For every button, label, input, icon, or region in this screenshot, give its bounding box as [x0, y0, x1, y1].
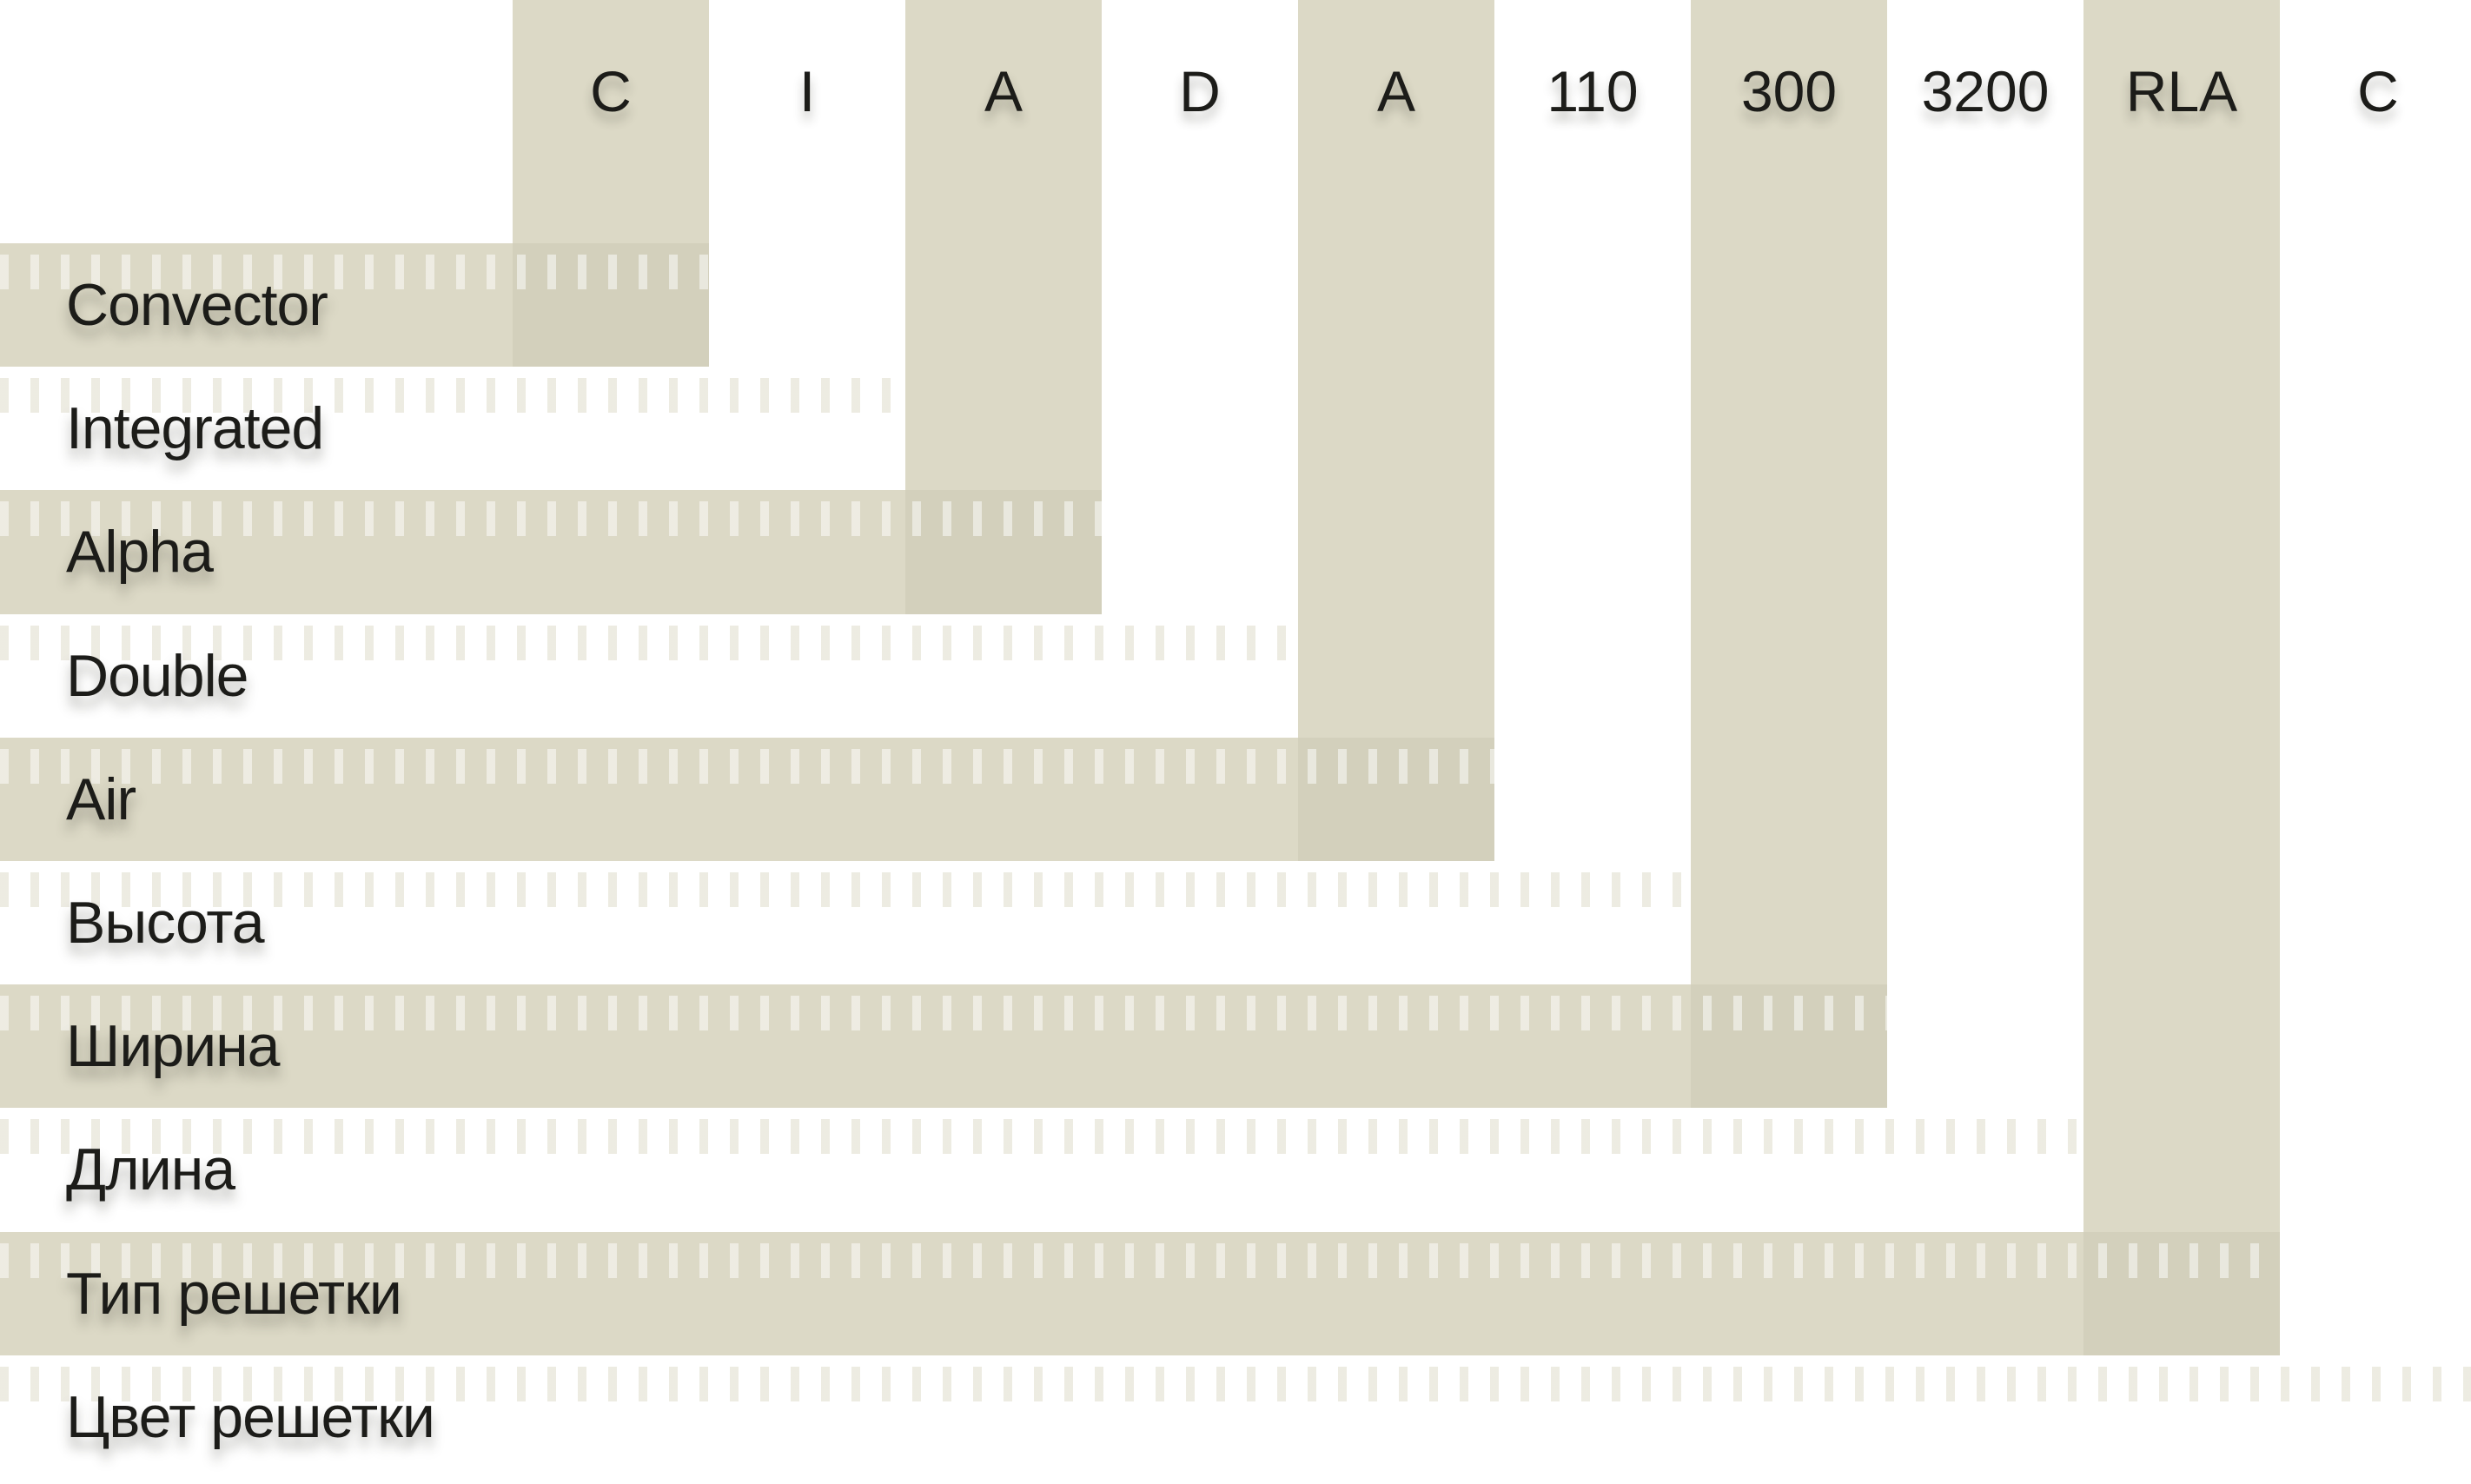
dotted-texture-line	[0, 996, 1887, 1030]
band-intersection-convector	[513, 243, 709, 367]
code-convector: C	[513, 0, 709, 182]
row-label-integrated: Integrated	[66, 399, 323, 458]
row-label-grille-color: Цвет решетки	[66, 1388, 434, 1447]
band-intersection-alpha	[905, 490, 1102, 613]
row-label-air: Air	[66, 770, 136, 829]
band-intersection-grille-type	[2083, 1232, 2280, 1355]
row-height: Высота	[0, 861, 1691, 984]
row-label-double: Double	[66, 646, 248, 706]
code-width: 300	[1691, 0, 1887, 182]
row-double: Double	[0, 614, 1298, 738]
row-width: Ширина	[0, 984, 1887, 1108]
row-label-convector: Convector	[66, 275, 328, 335]
row-integrated: Integrated	[0, 367, 905, 490]
row-grille-type: Тип решетки	[0, 1232, 2280, 1355]
code-length: 3200	[1887, 0, 2083, 182]
band-intersection-width	[1691, 984, 1887, 1108]
band-intersection-air	[1298, 738, 1494, 861]
code-integrated: I	[709, 0, 905, 182]
row-air: Air	[0, 738, 1494, 861]
row-length: Длина	[0, 1108, 2083, 1231]
code-grille-type: RLA	[2083, 0, 2280, 182]
row-label-alpha: Alpha	[66, 522, 213, 581]
row-label-length: Длина	[66, 1140, 235, 1199]
column-band-grille-type	[2083, 0, 2280, 1355]
row-grille-color: Цвет решетки	[0, 1355, 2471, 1479]
code-grille-color: C	[2280, 0, 2471, 182]
row-label-grille-type: Тип решетки	[66, 1264, 401, 1323]
row-label-width: Ширина	[66, 1017, 279, 1076]
code-alpha: A	[905, 0, 1102, 182]
code-air: A	[1298, 0, 1494, 182]
dotted-texture-line	[0, 749, 1494, 784]
code-double: D	[1102, 0, 1298, 182]
code-height: 110	[1494, 0, 1691, 182]
product-nomenclature-diagram: Convector Integrated Alpha Double Air Вы…	[0, 0, 2471, 1484]
dotted-texture-line	[0, 1119, 2083, 1154]
row-label-height: Высота	[66, 893, 264, 952]
